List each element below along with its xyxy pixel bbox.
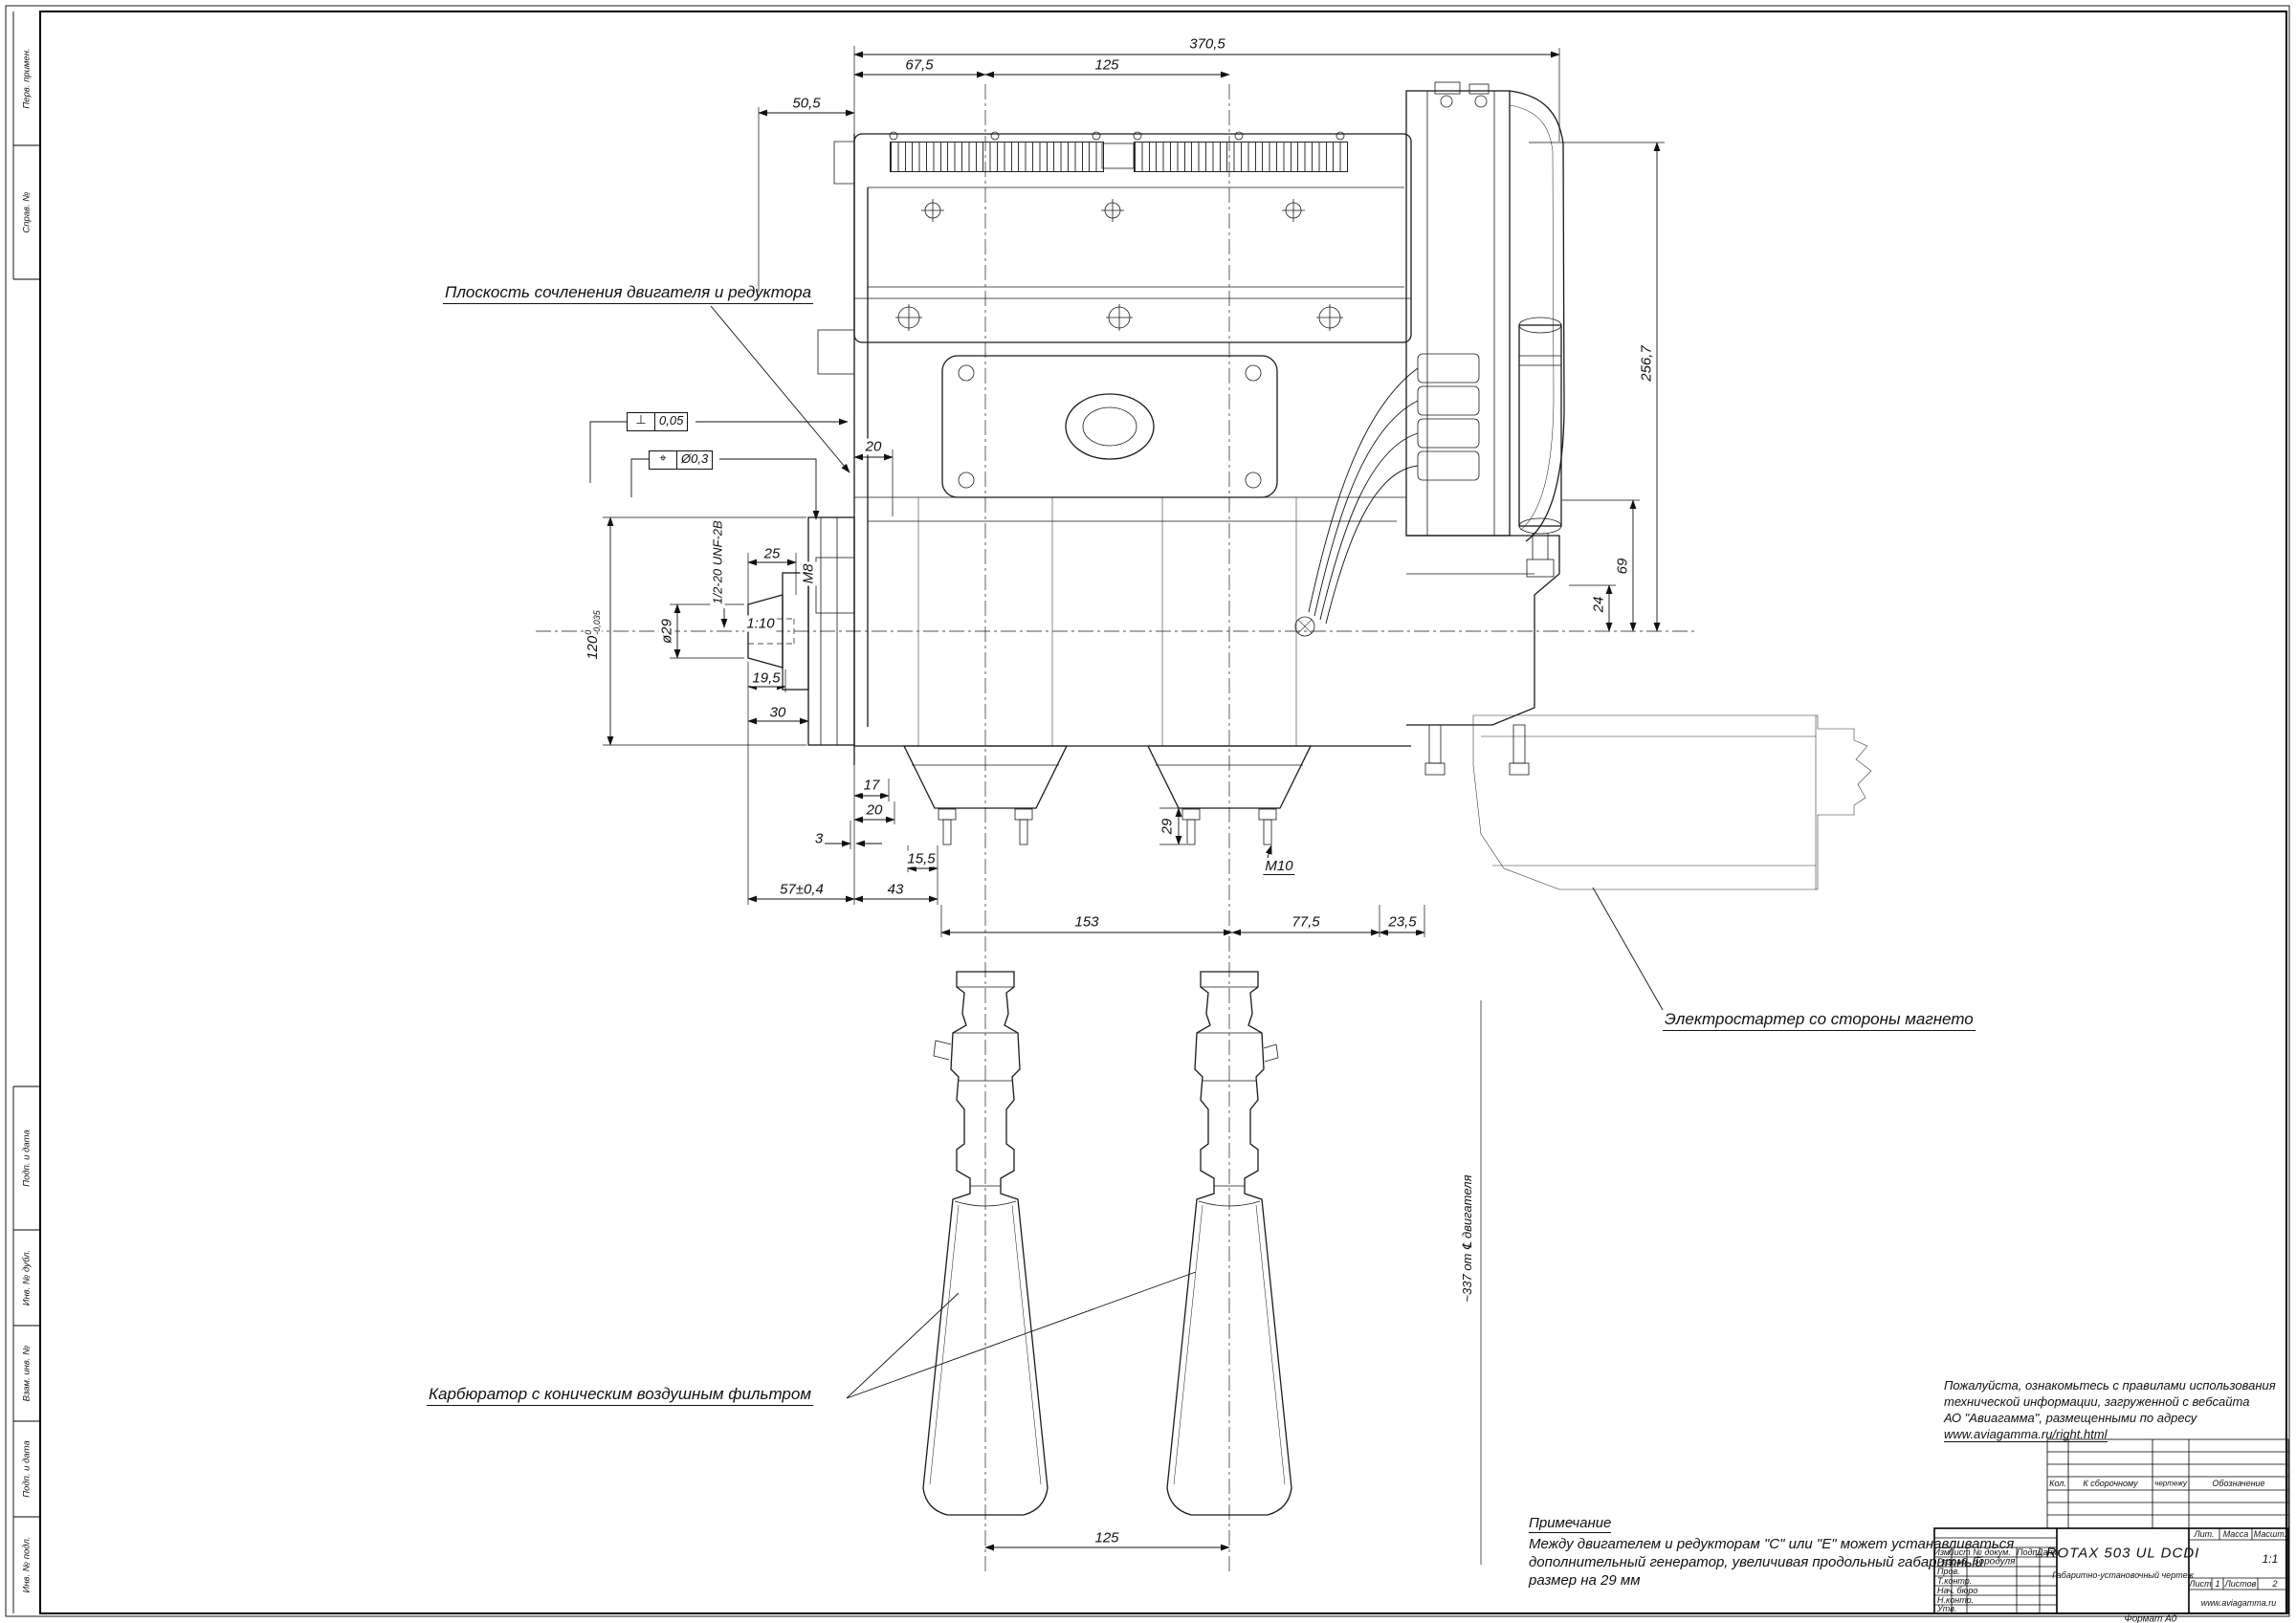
tb-row-tkontr: Т.контр.: [1937, 1576, 1972, 1586]
usage-info-block: Пожалуйста, ознакомьтесь с правилами исп…: [1944, 1377, 2276, 1442]
dim-15-5: 15,5: [905, 851, 937, 867]
dim-height-256-7: 256,7: [1639, 343, 1655, 384]
dim-reducer-plane: 50,5: [790, 96, 822, 112]
stamp-inv-dubl: Инв. № дубл.: [22, 1250, 33, 1305]
dim-cyl1-offset: 67,5: [903, 57, 935, 74]
tb-listov-label: Листов: [2225, 1579, 2257, 1589]
offset-note-label: ~337 от ℄ двигателя: [1460, 1173, 1475, 1304]
tb-site-link[interactable]: www.aviagamma.ru: [2201, 1598, 2277, 1608]
tb-massa-header: Масса: [2223, 1529, 2249, 1539]
tb-header-list: Лист: [1948, 1547, 1970, 1557]
dim-flange-20: 20: [864, 439, 884, 455]
dim-19-5: 19,5: [750, 670, 782, 687]
tb-row-nachburo: Нач. бюро: [1937, 1586, 1977, 1595]
dim-shaft-thread: 1/2-20 UNF-2B: [711, 518, 725, 605]
cooling-fins-left: [890, 142, 1104, 172]
tb-row-utv: Утв.: [1937, 1604, 1956, 1613]
dim-flange-dia: 1200-0,035: [585, 608, 602, 662]
tb-listov-num: 2: [2272, 1579, 2277, 1589]
document-title: ROTAX 503 UL DCDI: [2046, 1546, 2200, 1562]
dim-carb-spacing: 125: [1093, 1530, 1120, 1546]
note-line-3: размер на 29 мм: [1529, 1572, 1640, 1589]
dim-taper-len: 25: [762, 546, 783, 562]
dim-height-24: 24: [1591, 595, 1607, 615]
dim-30: 30: [768, 705, 788, 721]
drawing-sheet: Плоскость сочленения двигателя и редукто…: [0, 0, 2296, 1623]
dim-17: 17: [862, 778, 882, 794]
tb-header-ndoc: № докум.: [1973, 1547, 2011, 1557]
dim-43: 43: [886, 882, 906, 898]
info-url-link[interactable]: www.aviagamma.ru/right.html: [1944, 1427, 2108, 1442]
plane-label: Плоскость сочленения двигателя и редукто…: [443, 283, 813, 304]
cooling-fins-right: [1134, 142, 1348, 172]
stamp-inv-podl: Инв. № подл.: [22, 1537, 33, 1593]
tb-format-label: Формат А0: [2125, 1614, 2177, 1623]
note-line-2: дополнительный генератор, увеличивая про…: [1529, 1554, 1983, 1570]
tb-scale-value: 1:1: [2263, 1552, 2279, 1566]
stamp-podp-data-1: Подп. и дата: [22, 1130, 33, 1186]
perpendicularity-value: 0,05: [654, 412, 688, 431]
dim-23-5: 23,5: [1386, 914, 1418, 931]
stamp-podp-data-2: Подп. и дата: [22, 1440, 33, 1497]
cont-table-obozn: Обозначение: [2212, 1479, 2264, 1488]
flange-dia-value: 120: [585, 636, 601, 660]
dim-57: 57±0,4: [778, 882, 826, 898]
tb-list-num: 1: [2215, 1579, 2219, 1589]
note-title: Примечание: [1529, 1514, 1611, 1533]
stamp-sprav-no: Справ. №: [22, 191, 33, 232]
dim-thread-m8: М8: [801, 562, 817, 586]
cont-table-kol: Кол.: [2049, 1479, 2066, 1488]
tb-header-data: Дата: [2037, 1547, 2060, 1557]
tb-lit-header: Лит.: [2194, 1529, 2214, 1539]
dim-overall-width: 370,5: [1187, 36, 1227, 53]
perpendicularity-icon: ⊥: [627, 412, 654, 431]
stamp-vzam-inv: Взам. инв. №: [22, 1346, 33, 1402]
dim-stud-m10: M10: [1263, 858, 1294, 875]
info-line-1: Пожалуйста, ознакомьтесь с правилами исп…: [1944, 1378, 2276, 1393]
dim-cyl-spacing-top: 125: [1093, 57, 1120, 74]
info-line-3: АО "Авиагамма", размещенными по адресу: [1944, 1411, 2197, 1425]
flange-dia-lower: -0,035: [593, 610, 602, 635]
tb-row-razrab: Разраб.: [1937, 1557, 1969, 1567]
tb-razrab-name: Бородуля: [1973, 1557, 2015, 1568]
tb-list-label: Лист: [2189, 1579, 2211, 1589]
dim-153: 153: [1072, 914, 1100, 931]
carburetor-label: Карбюратор с коническим воздушным фильтр…: [427, 1385, 813, 1406]
dim-3: 3: [813, 831, 825, 847]
dim-20-bottom: 20: [865, 802, 885, 819]
dim-77-5: 77,5: [1290, 914, 1321, 931]
position-tolerance-icon: ⌖: [649, 450, 676, 470]
dim-stud-29: 29: [1159, 817, 1176, 837]
document-type: Габаритно-установочный чертеж: [2052, 1570, 2194, 1580]
stamp-perv-primen: Перв. примен.: [22, 48, 33, 108]
tolerance-frame-position: ⌖ Ø0,3: [649, 450, 713, 470]
dim-height-69: 69: [1615, 557, 1631, 577]
tb-masshtab-header: Масшт.: [2254, 1529, 2286, 1539]
info-line-2: технической информации, загруженной с ве…: [1944, 1394, 2249, 1409]
starter-label: Электростартер со стороны магнето: [1663, 1010, 1976, 1031]
cont-table-chert: чертежу: [2154, 1480, 2187, 1488]
position-tolerance-value: Ø0,3: [676, 450, 713, 470]
tolerance-frame-perpendicularity: ⊥ 0,05: [627, 412, 688, 431]
dim-taper: 1:10: [744, 616, 776, 632]
dim-shaft-dia: ø29: [659, 617, 675, 646]
cont-table-ksbor: К сборочному: [2083, 1479, 2137, 1488]
tb-row-prov: Пров.: [1937, 1567, 1960, 1576]
